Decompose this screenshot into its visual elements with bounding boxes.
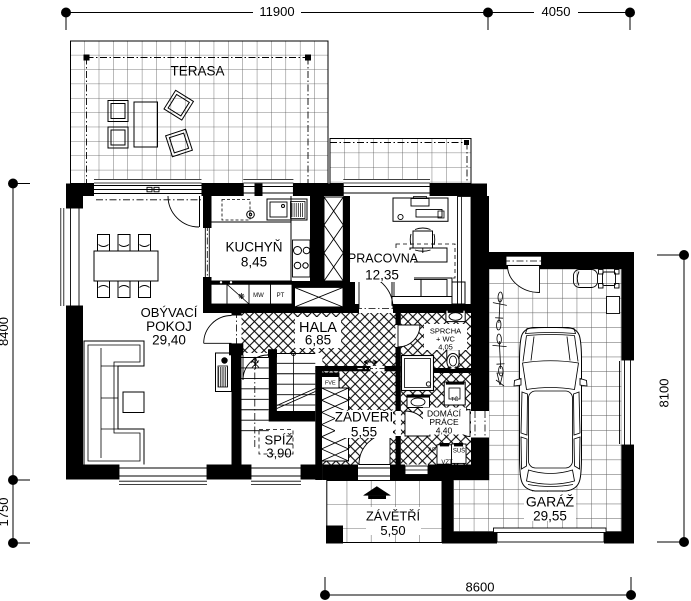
svg-text:OBÝVACÍ: OBÝVACÍ: [141, 305, 198, 320]
svg-text:GARÁŽ: GARÁŽ: [526, 494, 575, 510]
svg-text:4050: 4050: [542, 4, 571, 19]
svg-text:11900: 11900: [259, 4, 294, 19]
svg-text:12,35: 12,35: [365, 268, 399, 283]
svg-text:❋: ❋: [238, 292, 245, 301]
svg-text:4,05: 4,05: [438, 343, 453, 352]
svg-text:29,40: 29,40: [152, 333, 186, 348]
svg-text:5,55: 5,55: [351, 425, 377, 440]
svg-text:ZÁVĚTŘÍ: ZÁVĚTŘÍ: [366, 509, 420, 524]
svg-text:TERASA: TERASA: [170, 64, 224, 79]
svg-text:ZÁDVEŘÍ: ZÁDVEŘÍ: [335, 410, 394, 425]
svg-text:1750: 1750: [0, 498, 11, 527]
svg-text:AP: AP: [428, 448, 436, 454]
svg-text:4,40: 4,40: [436, 426, 453, 436]
svg-text:FVE: FVE: [325, 381, 336, 387]
svg-text:29,55: 29,55: [533, 509, 567, 524]
svg-text:3,90: 3,90: [266, 446, 291, 461]
svg-text:MW: MW: [253, 293, 264, 299]
svg-text:SUŠ: SUŠ: [453, 448, 465, 455]
svg-text:PT: PT: [277, 293, 285, 299]
svg-text:PRACOVNA: PRACOVNA: [348, 252, 419, 266]
svg-text:8400: 8400: [0, 317, 11, 346]
svg-text:5,50: 5,50: [380, 523, 405, 538]
svg-text:6,85: 6,85: [305, 333, 331, 348]
svg-text:VZT: VZT: [441, 460, 453, 466]
svg-text:8600: 8600: [466, 580, 495, 595]
svg-text:TČ: TČ: [451, 396, 458, 403]
svg-text:8,45: 8,45: [241, 255, 267, 270]
svg-text:8100: 8100: [657, 379, 672, 408]
svg-text:KUCHYŇ: KUCHYŇ: [225, 240, 282, 255]
